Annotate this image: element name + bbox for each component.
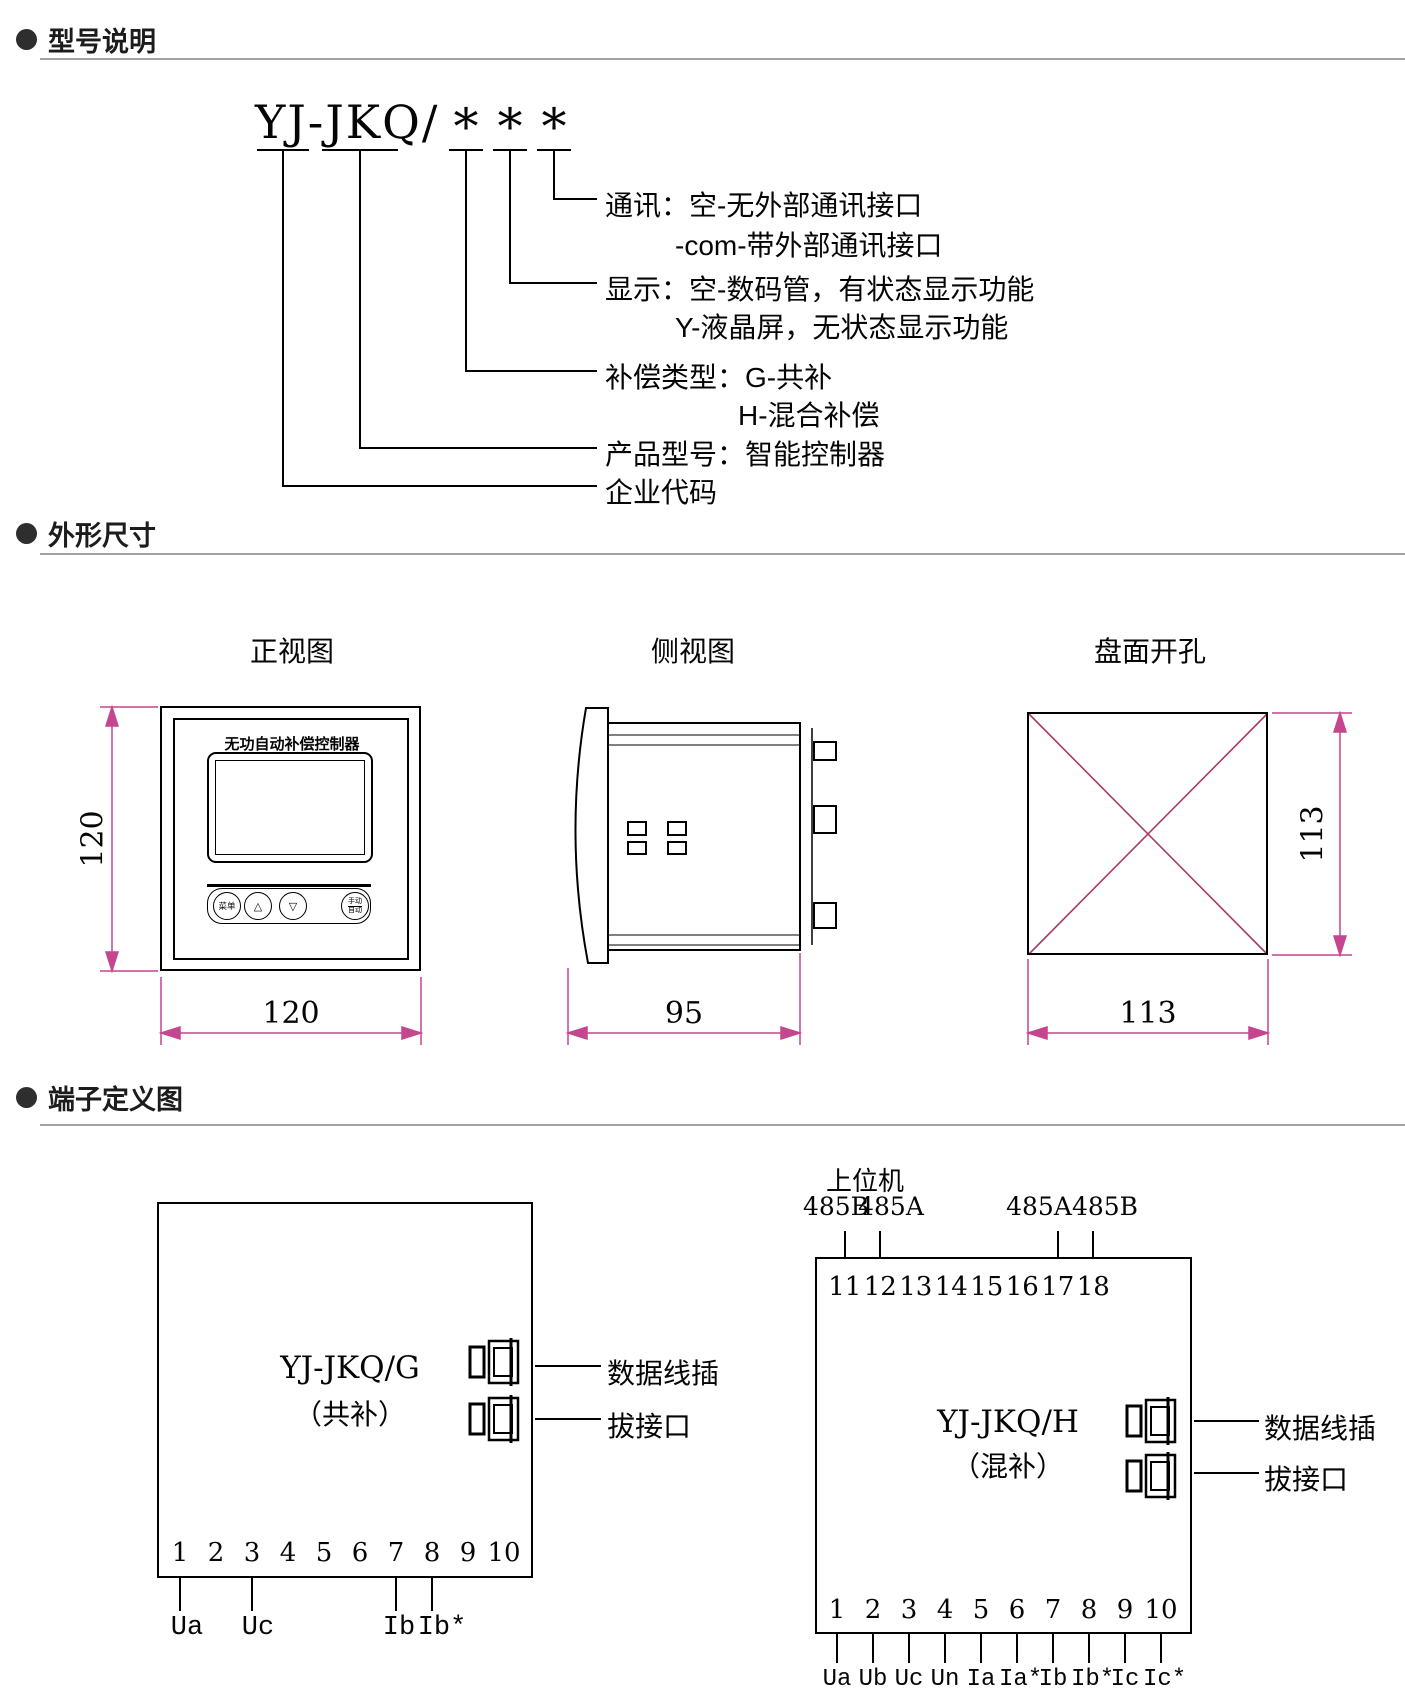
pin-number: 3 — [891, 1595, 927, 1625]
model-label-product: 产品型号：智能控制器 — [605, 433, 885, 473]
connector-label-line1: 数据线插 — [1264, 1407, 1376, 1447]
pin-number: 1 — [162, 1538, 198, 1568]
menu-button: 菜单 — [213, 892, 241, 920]
terminal-box-g — [157, 1202, 533, 1578]
pin-label-uc: Uc — [242, 1613, 274, 1643]
section-title: 型号说明 — [48, 20, 156, 59]
up-button: △ — [244, 892, 272, 920]
model-label-company: 企业代码 — [605, 471, 717, 511]
front-width-dim: 120 — [262, 996, 319, 1031]
pin-number: 10 — [486, 1538, 522, 1568]
pin-number: 18 — [1076, 1272, 1112, 1302]
pin-number: 4 — [270, 1538, 306, 1568]
pin-number: 5 — [306, 1538, 342, 1568]
pin-number: 14 — [934, 1272, 970, 1302]
pin-number: 15 — [969, 1272, 1005, 1302]
front-height-dim: 120 — [76, 810, 111, 867]
section-header-terminal: 端子定义图 — [16, 1078, 183, 1117]
pin-number: 7 — [1035, 1595, 1071, 1625]
model-label-display-sub: Y-液晶屏，无状态显示功能 — [675, 306, 1008, 346]
model-star: * — [454, 98, 479, 156]
terminal-h-top-pin-row: 1112131415161718 — [827, 1272, 1111, 1302]
cutout-square — [1027, 712, 1268, 955]
front-view-keypad-line — [207, 884, 371, 887]
pin-number: 2 — [198, 1538, 234, 1568]
pin-number: 8 — [1071, 1595, 1107, 1625]
terminal-g-type: （共补） — [294, 1393, 406, 1433]
pin-number: 1 — [819, 1595, 855, 1625]
pin-label: Ic — [1107, 1666, 1143, 1693]
pin-label: Ib* — [1071, 1666, 1107, 1693]
pin-label: Ua — [819, 1666, 855, 1693]
side-view-drawing — [575, 708, 836, 963]
manual-page: 型号说明 YJ-JKQ/ * * * 通讯：空-无外部通讯接口 -com-带外部… — [0, 0, 1405, 1707]
terminal-h-pin-label-row: UaUbUcUnIaIa*IbIb*IcIc* — [819, 1666, 1179, 1693]
pin-label: Un — [927, 1666, 963, 1693]
pin-number: 9 — [450, 1538, 486, 1568]
terminal-h-pin-row: 12345678910 — [819, 1595, 1179, 1625]
pin-number: 11 — [827, 1272, 863, 1302]
port-label-485a: 485A — [858, 1192, 924, 1221]
model-tree-lines — [257, 150, 597, 486]
side-view-title: 侧视图 — [651, 630, 735, 670]
pin-number: 6 — [342, 1538, 378, 1568]
cutout-width-dim: 113 — [1119, 996, 1176, 1031]
connector-label-line2: 拔接口 — [607, 1405, 691, 1445]
pin-number: 17 — [1040, 1272, 1076, 1302]
pin-label: Ic* — [1143, 1666, 1179, 1693]
pin-number: 12 — [863, 1272, 899, 1302]
pin-number: 7 — [378, 1538, 414, 1568]
device-label: 无功自动补偿控制器 — [224, 733, 359, 754]
pin-label-ua: Ua — [171, 1613, 203, 1643]
connector-label-line1: 数据线插 — [607, 1352, 719, 1392]
section-header-outline: 外形尺寸 — [16, 514, 156, 553]
front-view-title: 正视图 — [250, 630, 334, 670]
cutout-height-dim: 113 — [1296, 805, 1331, 862]
bullet-icon — [16, 29, 37, 50]
pin-number: 3 — [234, 1538, 270, 1568]
pin-label-ib: Ib — [383, 1613, 415, 1643]
model-label-compensation: 补偿类型：G-共补 — [605, 356, 832, 396]
model-label-comm: 通讯：空-无外部通讯接口 — [605, 184, 922, 224]
pin-number: 6 — [999, 1595, 1035, 1625]
bullet-icon — [16, 1087, 37, 1108]
pin-number: 8 — [414, 1538, 450, 1568]
model-star: * — [542, 98, 567, 156]
port-label-485b: 485B — [1072, 1192, 1138, 1221]
pin-label: Ia — [963, 1666, 999, 1693]
section-header-model: 型号说明 — [16, 20, 156, 59]
side-depth-dim: 95 — [665, 996, 703, 1031]
pin-number: 9 — [1107, 1595, 1143, 1625]
section-title: 端子定义图 — [48, 1078, 183, 1117]
pin-label: Ub — [855, 1666, 891, 1693]
pin-number: 13 — [898, 1272, 934, 1302]
pin-number: 16 — [1005, 1272, 1041, 1302]
pin-number: 4 — [927, 1595, 963, 1625]
front-view-screen — [215, 760, 365, 855]
cutout-view-title: 盘面开孔 — [1094, 630, 1206, 670]
connector-label-line2: 拔接口 — [1264, 1458, 1348, 1498]
terminal-h-model: YJ-JKQ/H — [937, 1404, 1079, 1440]
bullet-icon — [16, 523, 37, 544]
pin-number: 2 — [855, 1595, 891, 1625]
model-star: * — [498, 98, 523, 156]
model-code: YJ-JKQ/ — [255, 95, 439, 149]
terminal-g-model: YJ-JKQ/G — [280, 1350, 420, 1386]
down-button: ▽ — [279, 892, 307, 920]
pin-number: 5 — [963, 1595, 999, 1625]
section-divider — [40, 553, 1405, 555]
model-label-display: 显示：空-数码管，有状态显示功能 — [605, 268, 1034, 308]
section-divider — [40, 58, 1405, 60]
pin-label: Ia* — [999, 1666, 1035, 1693]
pin-number: 10 — [1143, 1595, 1179, 1625]
terminal-h-type: （混补） — [952, 1445, 1064, 1485]
section-title: 外形尺寸 — [48, 514, 156, 553]
pin-label: Ib — [1035, 1666, 1071, 1693]
pin-label: Uc — [891, 1666, 927, 1693]
model-label-comm-sub: -com-带外部通讯接口 — [675, 224, 943, 264]
terminal-g-pin-row: 12345678910 — [162, 1538, 522, 1568]
section-divider — [40, 1124, 1405, 1126]
pin-label-ib-star: Ib* — [418, 1613, 467, 1643]
port-label-485a: 485A — [1006, 1192, 1072, 1221]
model-label-compensation-sub: H-混合补偿 — [738, 394, 880, 434]
manual-auto-button: 手动自动 — [341, 892, 369, 920]
